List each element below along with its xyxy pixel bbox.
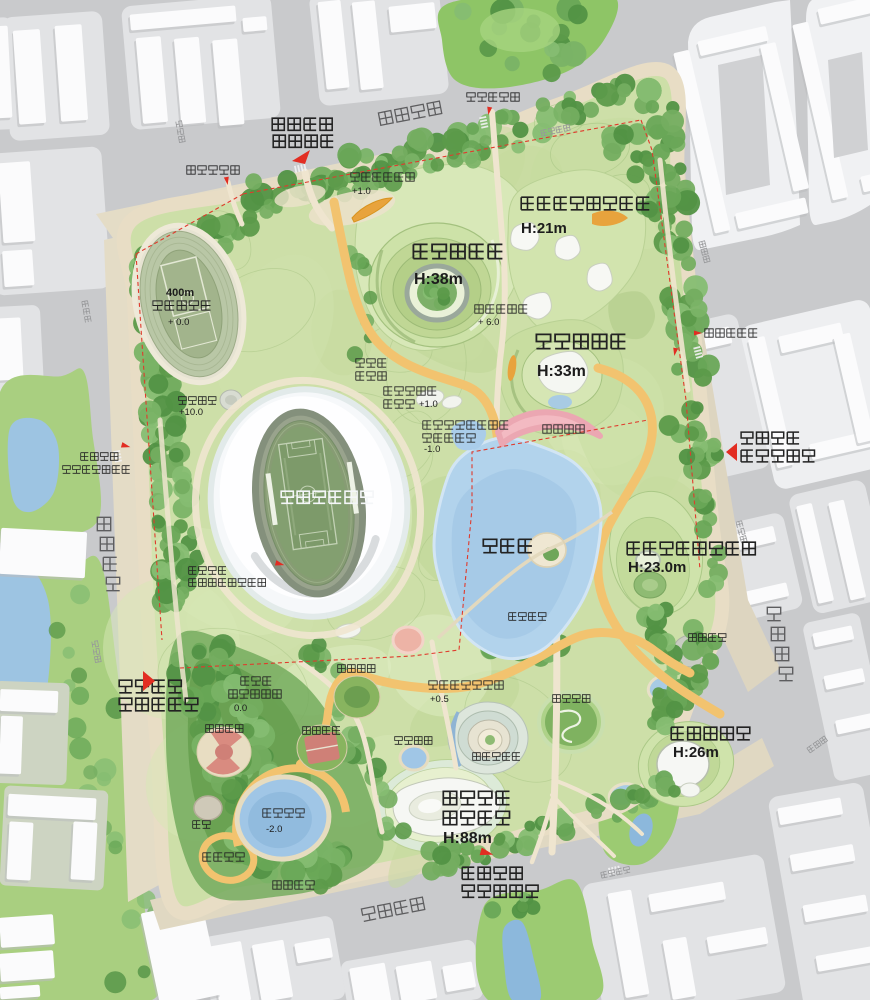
svg-text:-1.0: -1.0 bbox=[424, 444, 440, 455]
svg-text:H:23.0m: H:23.0m bbox=[628, 559, 686, 576]
svg-text:+0.5: +0.5 bbox=[430, 694, 449, 705]
svg-text:400m: 400m bbox=[166, 287, 194, 299]
svg-text:H:88m: H:88m bbox=[443, 830, 492, 847]
svg-text:+1.0: +1.0 bbox=[352, 186, 371, 197]
svg-text:H:38m: H:38m bbox=[414, 271, 463, 288]
svg-text:H:26m: H:26m bbox=[673, 744, 719, 761]
svg-text:H:21m: H:21m bbox=[521, 220, 567, 237]
svg-text:+ 6.0: + 6.0 bbox=[478, 317, 499, 328]
svg-text:+1.0: +1.0 bbox=[419, 399, 438, 410]
svg-text:0.0: 0.0 bbox=[234, 703, 247, 714]
svg-text:+10.0: +10.0 bbox=[179, 407, 203, 418]
svg-text:+ 0.0: + 0.0 bbox=[168, 317, 189, 328]
svg-text:H:33m: H:33m bbox=[537, 363, 586, 380]
svg-text:-2.0: -2.0 bbox=[266, 824, 282, 835]
